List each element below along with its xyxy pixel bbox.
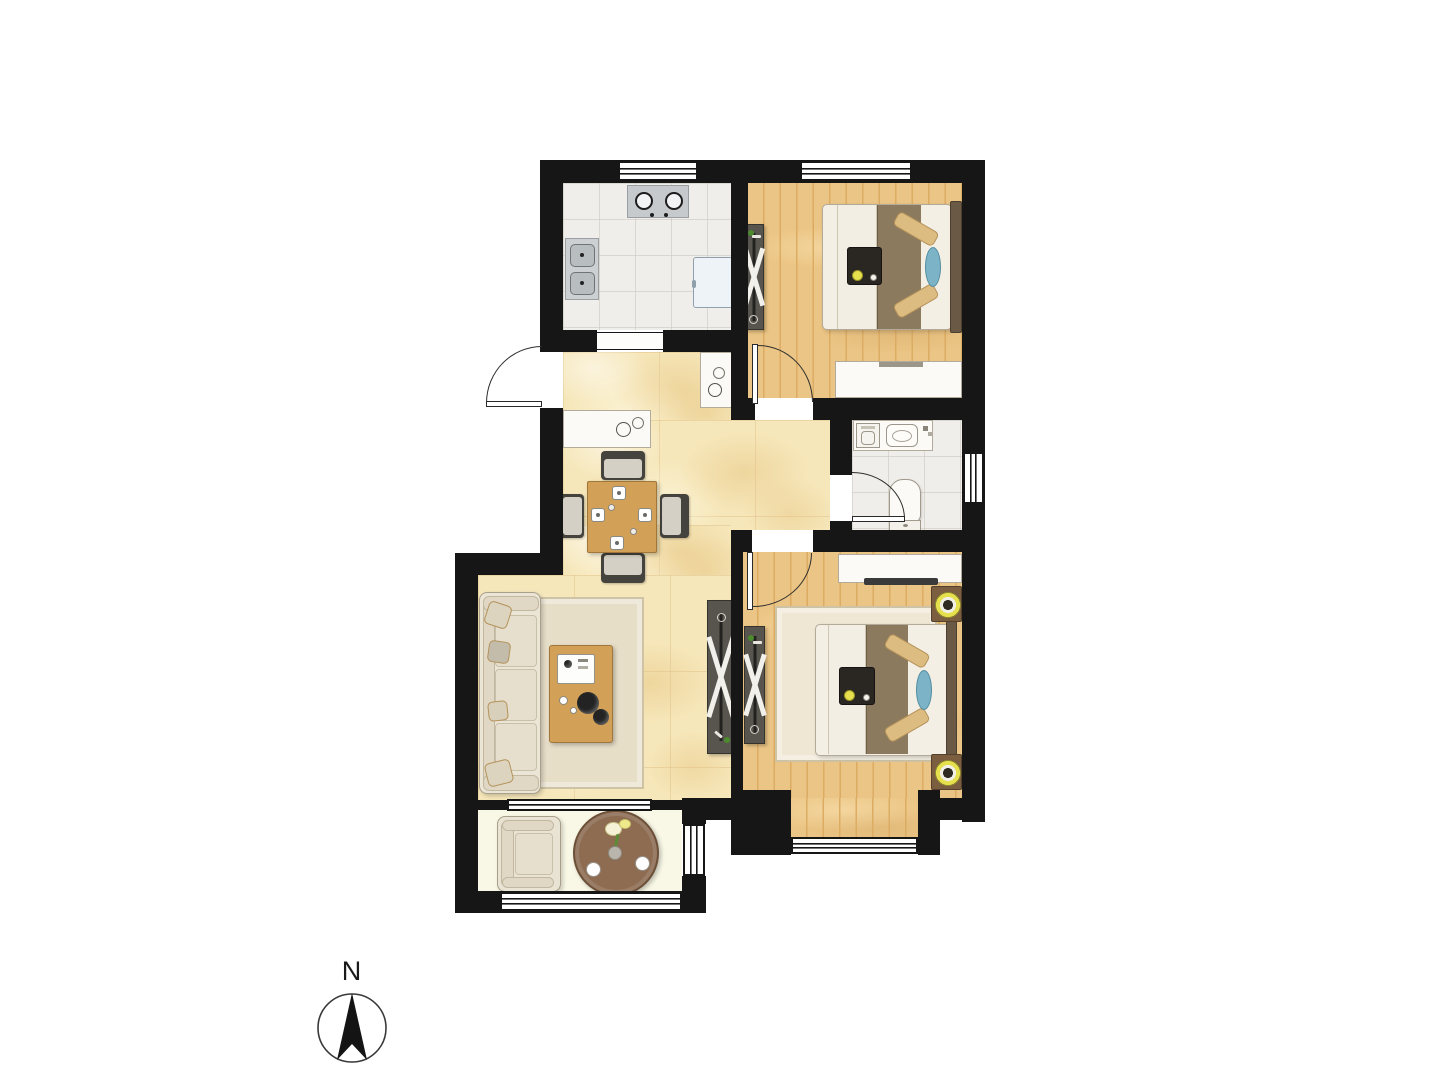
compass-arrow-icon [314, 989, 390, 1065]
tray-dot [863, 694, 870, 701]
entry-door-swing [486, 346, 542, 403]
sofa-pillow [487, 640, 512, 665]
tray-lamp-dot [852, 270, 863, 281]
decor-bowl [708, 383, 722, 397]
bathroom-vanity [853, 420, 933, 451]
decor-plate [616, 422, 631, 437]
bedroom2-wardrobe [744, 626, 765, 744]
decor-plate [632, 417, 644, 429]
decor-bowl-black [593, 709, 609, 725]
wardrobe-handle [717, 613, 726, 622]
coffee-cup [559, 696, 568, 705]
burner-icon [665, 192, 683, 210]
wall-bay-left-block [731, 790, 791, 855]
wall-bathroom-left-top [830, 420, 852, 475]
burner-icon [635, 192, 653, 210]
wall-balcony-right-bottom [682, 876, 706, 913]
dining-chair [660, 494, 689, 538]
washer-door [861, 431, 875, 445]
wall-bay-right-block [918, 790, 940, 855]
vase [608, 846, 622, 860]
serving-tray [557, 654, 595, 684]
bed-cushion-blue [925, 247, 941, 287]
armchair-arm [502, 820, 554, 831]
sink-bowl [892, 430, 912, 442]
place-setting [612, 486, 626, 500]
kitchen-double-sink [565, 238, 599, 300]
cooktop-knob [664, 213, 668, 217]
refrigerator [693, 257, 733, 308]
bedroom2-bay-floor [791, 798, 918, 839]
nightstand [931, 586, 962, 622]
tray-lamp-dot [844, 690, 855, 701]
wall-bedroom1-bottom-right [813, 398, 985, 420]
washing-machine [856, 423, 880, 448]
balcony-armchair [497, 816, 561, 892]
dining-table [587, 481, 657, 553]
tray-dot [870, 274, 877, 281]
bedroom1-window [800, 161, 912, 181]
wall-kitchen-bottom-right [663, 330, 748, 352]
sofa-backrest [483, 599, 495, 787]
tray-item [578, 659, 588, 662]
fridge-handle [692, 280, 696, 288]
nightstand [931, 754, 962, 790]
apartment-floor-plan [0, 0, 1440, 1080]
sofa-pillow [487, 700, 509, 722]
floor-plan-canvas: N [0, 0, 1440, 1080]
wall-left-lower [455, 553, 478, 913]
place-setting [638, 508, 652, 522]
tv-icon [864, 578, 938, 585]
washer-panel [861, 426, 875, 429]
bedroom1-door [752, 344, 758, 404]
faucet-icon [923, 426, 928, 431]
wall-kitchen-bottom-left [540, 330, 597, 352]
coffee-cup [570, 707, 577, 714]
wardrobe-mark [753, 641, 762, 644]
compass-north-label: N [296, 956, 408, 987]
wardrobe-mark [752, 235, 761, 238]
bed-tray [847, 247, 882, 285]
decor-bowl [713, 367, 725, 379]
bedroom2-double-bed [815, 624, 950, 756]
shoe-cabinet [700, 352, 733, 408]
sink-drain [580, 281, 584, 285]
tray-bottle [564, 660, 572, 668]
table-lamp-icon [935, 592, 961, 618]
tray-item [578, 666, 588, 669]
glass [608, 504, 615, 511]
tea-cup [586, 862, 601, 877]
place-setting [591, 508, 605, 522]
place-setting [610, 536, 624, 550]
sink-drain [580, 253, 584, 257]
balcony-window [500, 892, 682, 911]
wardrobe-handle [749, 315, 758, 324]
dining-chair [601, 553, 645, 583]
bedroom1-double-bed [822, 204, 952, 330]
wall-bedroom2-top-left [731, 530, 752, 552]
wall-left-mid [540, 408, 563, 575]
plant-icon [724, 737, 730, 743]
sideboard [563, 410, 651, 448]
armchair-arm [502, 877, 554, 888]
balcony-round-table [573, 810, 659, 896]
kitchen-window [618, 161, 698, 181]
compass-north-indicator: N [296, 956, 408, 1070]
kitchen-sliding-opening [597, 332, 663, 350]
cooktop-knob [650, 213, 654, 217]
dining-chair [601, 451, 645, 480]
table-lamp-icon [935, 760, 961, 786]
wardrobe-handle [750, 725, 759, 734]
wall-bedroom2-left [731, 530, 743, 800]
bedroom1-dresser [835, 361, 962, 398]
bed-tray [839, 667, 875, 705]
coffee-table [549, 645, 613, 743]
entry-door [486, 401, 542, 407]
sink [886, 424, 918, 447]
faucet-icon [928, 432, 932, 436]
bedroom2-headboard [946, 621, 957, 759]
living-balcony-slider [507, 799, 652, 811]
bathroom-window [963, 452, 984, 504]
wall-kitchen-bedroom1 [731, 160, 748, 420]
bed-cushion-blue [916, 670, 932, 710]
bedroom2-bay-window [791, 837, 918, 854]
wall-left-upper [540, 160, 563, 351]
gas-cooktop [627, 185, 689, 218]
flush-button [903, 524, 908, 527]
flower-icon [619, 819, 631, 829]
tea-cup [635, 856, 650, 871]
wall-bottom-right [938, 798, 985, 820]
bathroom-door [852, 516, 905, 522]
wall-top [540, 160, 985, 183]
sofa [479, 592, 541, 794]
bedroom2-door [747, 552, 753, 610]
balcony-side-window [683, 824, 705, 876]
dresser-handle [879, 362, 923, 367]
wall-bedroom2-top-right [813, 530, 985, 552]
armchair-seat [515, 833, 553, 875]
bedroom1-headboard [950, 201, 962, 333]
glass [630, 528, 637, 535]
